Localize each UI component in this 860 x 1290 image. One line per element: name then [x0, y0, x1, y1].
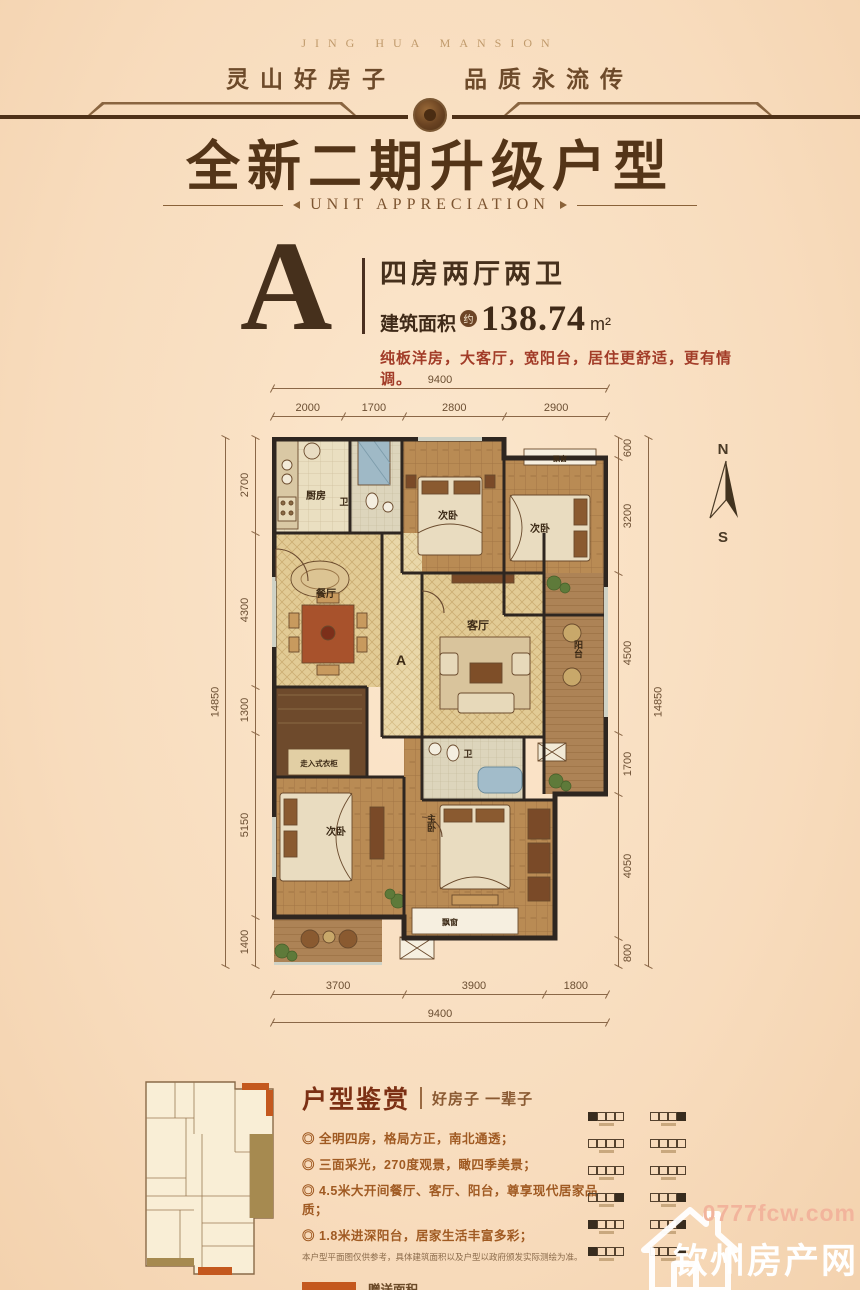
bullet-item: ◎ 1.8米进深阳台，居家生活丰富多彩；	[302, 1225, 602, 1244]
dim-seg: 2000	[272, 397, 343, 417]
subtitle-line-left	[163, 205, 283, 206]
building-key-item	[588, 1193, 624, 1207]
dim-seg: 600	[618, 437, 638, 458]
subtitle-arrow-right	[560, 201, 567, 209]
dim-seg: 1400	[236, 917, 256, 967]
area-unit: m²	[590, 314, 611, 335]
room-label-bedroom-top: 次卧	[438, 509, 458, 522]
building-key-item	[588, 1166, 624, 1180]
unit-layout: 四房两厅两卫	[380, 252, 740, 291]
room-label-bath-upper: 卫	[339, 497, 348, 507]
dim-right-segments: 600 3200 4500 1700 4050 800	[618, 437, 638, 967]
legend: 赠送面积 计一半面积	[302, 1279, 602, 1290]
compass-north-label: N	[696, 441, 750, 458]
room-label-balcony: 阳台	[573, 640, 583, 659]
room-label-closet: 走入式衣柜	[300, 758, 338, 768]
dim-seg: 3700	[272, 975, 404, 995]
dim-left-segments: 2700 4300 1300 5150 1400	[236, 437, 256, 967]
page-subtitle-row: UNIT APPRECIATION	[0, 196, 860, 214]
dim-seg: 3200	[618, 458, 638, 572]
bullet-item: ◎ 全明四房，格局方正，南北通透；	[302, 1128, 602, 1147]
page-subtitle: UNIT APPRECIATION	[310, 196, 550, 214]
ornament-wing-left	[88, 102, 356, 115]
brand-english: JING HUA MANSION	[0, 36, 860, 51]
dim-seg: 1700	[343, 397, 404, 417]
dim-right-total: 14850	[648, 437, 668, 967]
appreciation-header: 户型鉴赏 好房子 一辈子	[302, 1080, 602, 1116]
dim-seg: 2700	[236, 437, 256, 533]
room-label-kitchen: 厨房	[306, 489, 326, 502]
building-key-item	[650, 1112, 686, 1126]
appreciation-separator	[420, 1087, 422, 1109]
subtitle-arrow-left	[293, 201, 300, 209]
dim-seg: 4300	[236, 533, 256, 686]
dim-seg: 1800	[544, 975, 608, 995]
dim-seg: 1300	[236, 687, 256, 733]
dim-seg: 4500	[618, 573, 638, 734]
building-key-item	[588, 1139, 624, 1153]
dim-seg: 14850	[206, 437, 226, 967]
mini-plan-thumbnail	[133, 1078, 291, 1286]
poster-page: JING HUA MANSION 灵山好房子 品质永流传 全新二期升级户型 UN…	[0, 0, 860, 1290]
approx-badge: 约	[460, 310, 477, 327]
page-title: 全新二期升级户型	[0, 122, 860, 201]
watermark-url: 0777fcw.com	[703, 1200, 856, 1227]
legend-row-gift: 赠送面积	[302, 1279, 602, 1290]
building-key-item	[650, 1139, 686, 1153]
dim-seg: 800	[618, 938, 638, 967]
dim-seg: 3900	[404, 975, 543, 995]
dim-seg: 4050	[618, 794, 638, 939]
compass-needle-icon	[696, 458, 750, 524]
legend-label-gift: 赠送面积	[368, 1279, 418, 1290]
unit-letter: A	[240, 222, 332, 350]
building-key-item	[588, 1247, 624, 1261]
area-value: 138.74	[481, 297, 586, 339]
ornament-line-right	[452, 115, 860, 119]
unit-area-row: 建筑面积 约 138.74 m²	[380, 297, 740, 339]
compass-south-label: S	[696, 529, 750, 546]
ornament-wing-right	[504, 102, 772, 115]
bullet-item: ◎ 4.5米大开间餐厅、客厅、阳台，尊享现代居家品质；	[302, 1180, 602, 1218]
dim-seg: 2800	[404, 397, 504, 417]
appreciation-subtitle: 好房子 一辈子	[432, 1088, 533, 1109]
building-key-item	[588, 1220, 624, 1234]
site-watermark: 0777fcw.com 钦州房产网	[640, 1190, 860, 1290]
dim-top-total: 9400	[272, 369, 608, 389]
dim-seg: 1700	[618, 733, 638, 794]
dim-top-segments: 2000 1700 2800 2900	[272, 397, 608, 417]
area-label: 建筑面积	[380, 309, 456, 336]
legend-swatch-gift	[302, 1282, 356, 1290]
building-key-item	[650, 1166, 686, 1180]
subtitle-line-right	[577, 205, 697, 206]
room-label-corridor-a: A	[396, 652, 406, 668]
watermark-site-name: 钦州房产网	[673, 1233, 858, 1284]
building-key-item	[588, 1112, 624, 1126]
appreciation-bullets: ◎ 全明四房，格局方正，南北通透； ◎ 三面采光，270度观景，瞰四季美景； ◎…	[302, 1128, 602, 1244]
room-label-dining: 餐厅	[315, 587, 336, 600]
appreciation-title: 户型鉴赏	[302, 1080, 410, 1116]
floor-plan-drawing: 厨房 卫 次卧 飘窗 次卧 餐厅 A 客厅 阳台 走入式衣柜 卫 次卧 主卧 飘…	[272, 437, 608, 967]
room-label-bedroom-topright: 次卧	[530, 522, 550, 535]
dim-seg: 9400	[272, 369, 608, 389]
floor-plan-block: 9400 2000 1700 2800 2900 14850 2700 4300…	[190, 365, 770, 1055]
dim-seg: 14850	[648, 437, 668, 967]
appreciation-section: 户型鉴赏 好房子 一辈子 ◎ 全明四房，格局方正，南北通透； ◎ 三面采光，27…	[302, 1080, 602, 1290]
dim-bottom-segments: 3700 3900 1800	[272, 975, 608, 995]
disclaimer-text: 本户型平面图仅供参考，具体建筑面积以及户型以政府颁发实际测绘为准。	[302, 1251, 602, 1263]
room-label-living: 客厅	[466, 618, 489, 632]
dim-bottom-total: 9400	[272, 1003, 608, 1023]
dim-seg: 5150	[236, 733, 256, 917]
compass: N S	[696, 441, 750, 547]
room-label-bay-top: 飘窗	[553, 454, 567, 463]
room-label-bay-bottom: 飘窗	[442, 917, 458, 927]
dim-seg: 9400	[272, 1003, 608, 1023]
brand-tagline: 灵山好房子 品质永流传	[0, 60, 860, 94]
room-label-bath-lower: 卫	[463, 749, 472, 759]
room-label-master: 主卧	[426, 813, 436, 833]
dim-left-total: 14850	[206, 437, 226, 967]
room-label-bedroom-left: 次卧	[326, 825, 346, 838]
dim-seg: 2900	[504, 397, 608, 417]
bullet-item: ◎ 三面采光，270度观景，瞰四季美景；	[302, 1154, 602, 1173]
ornament-line-left	[0, 115, 408, 119]
unit-divider	[362, 258, 365, 334]
